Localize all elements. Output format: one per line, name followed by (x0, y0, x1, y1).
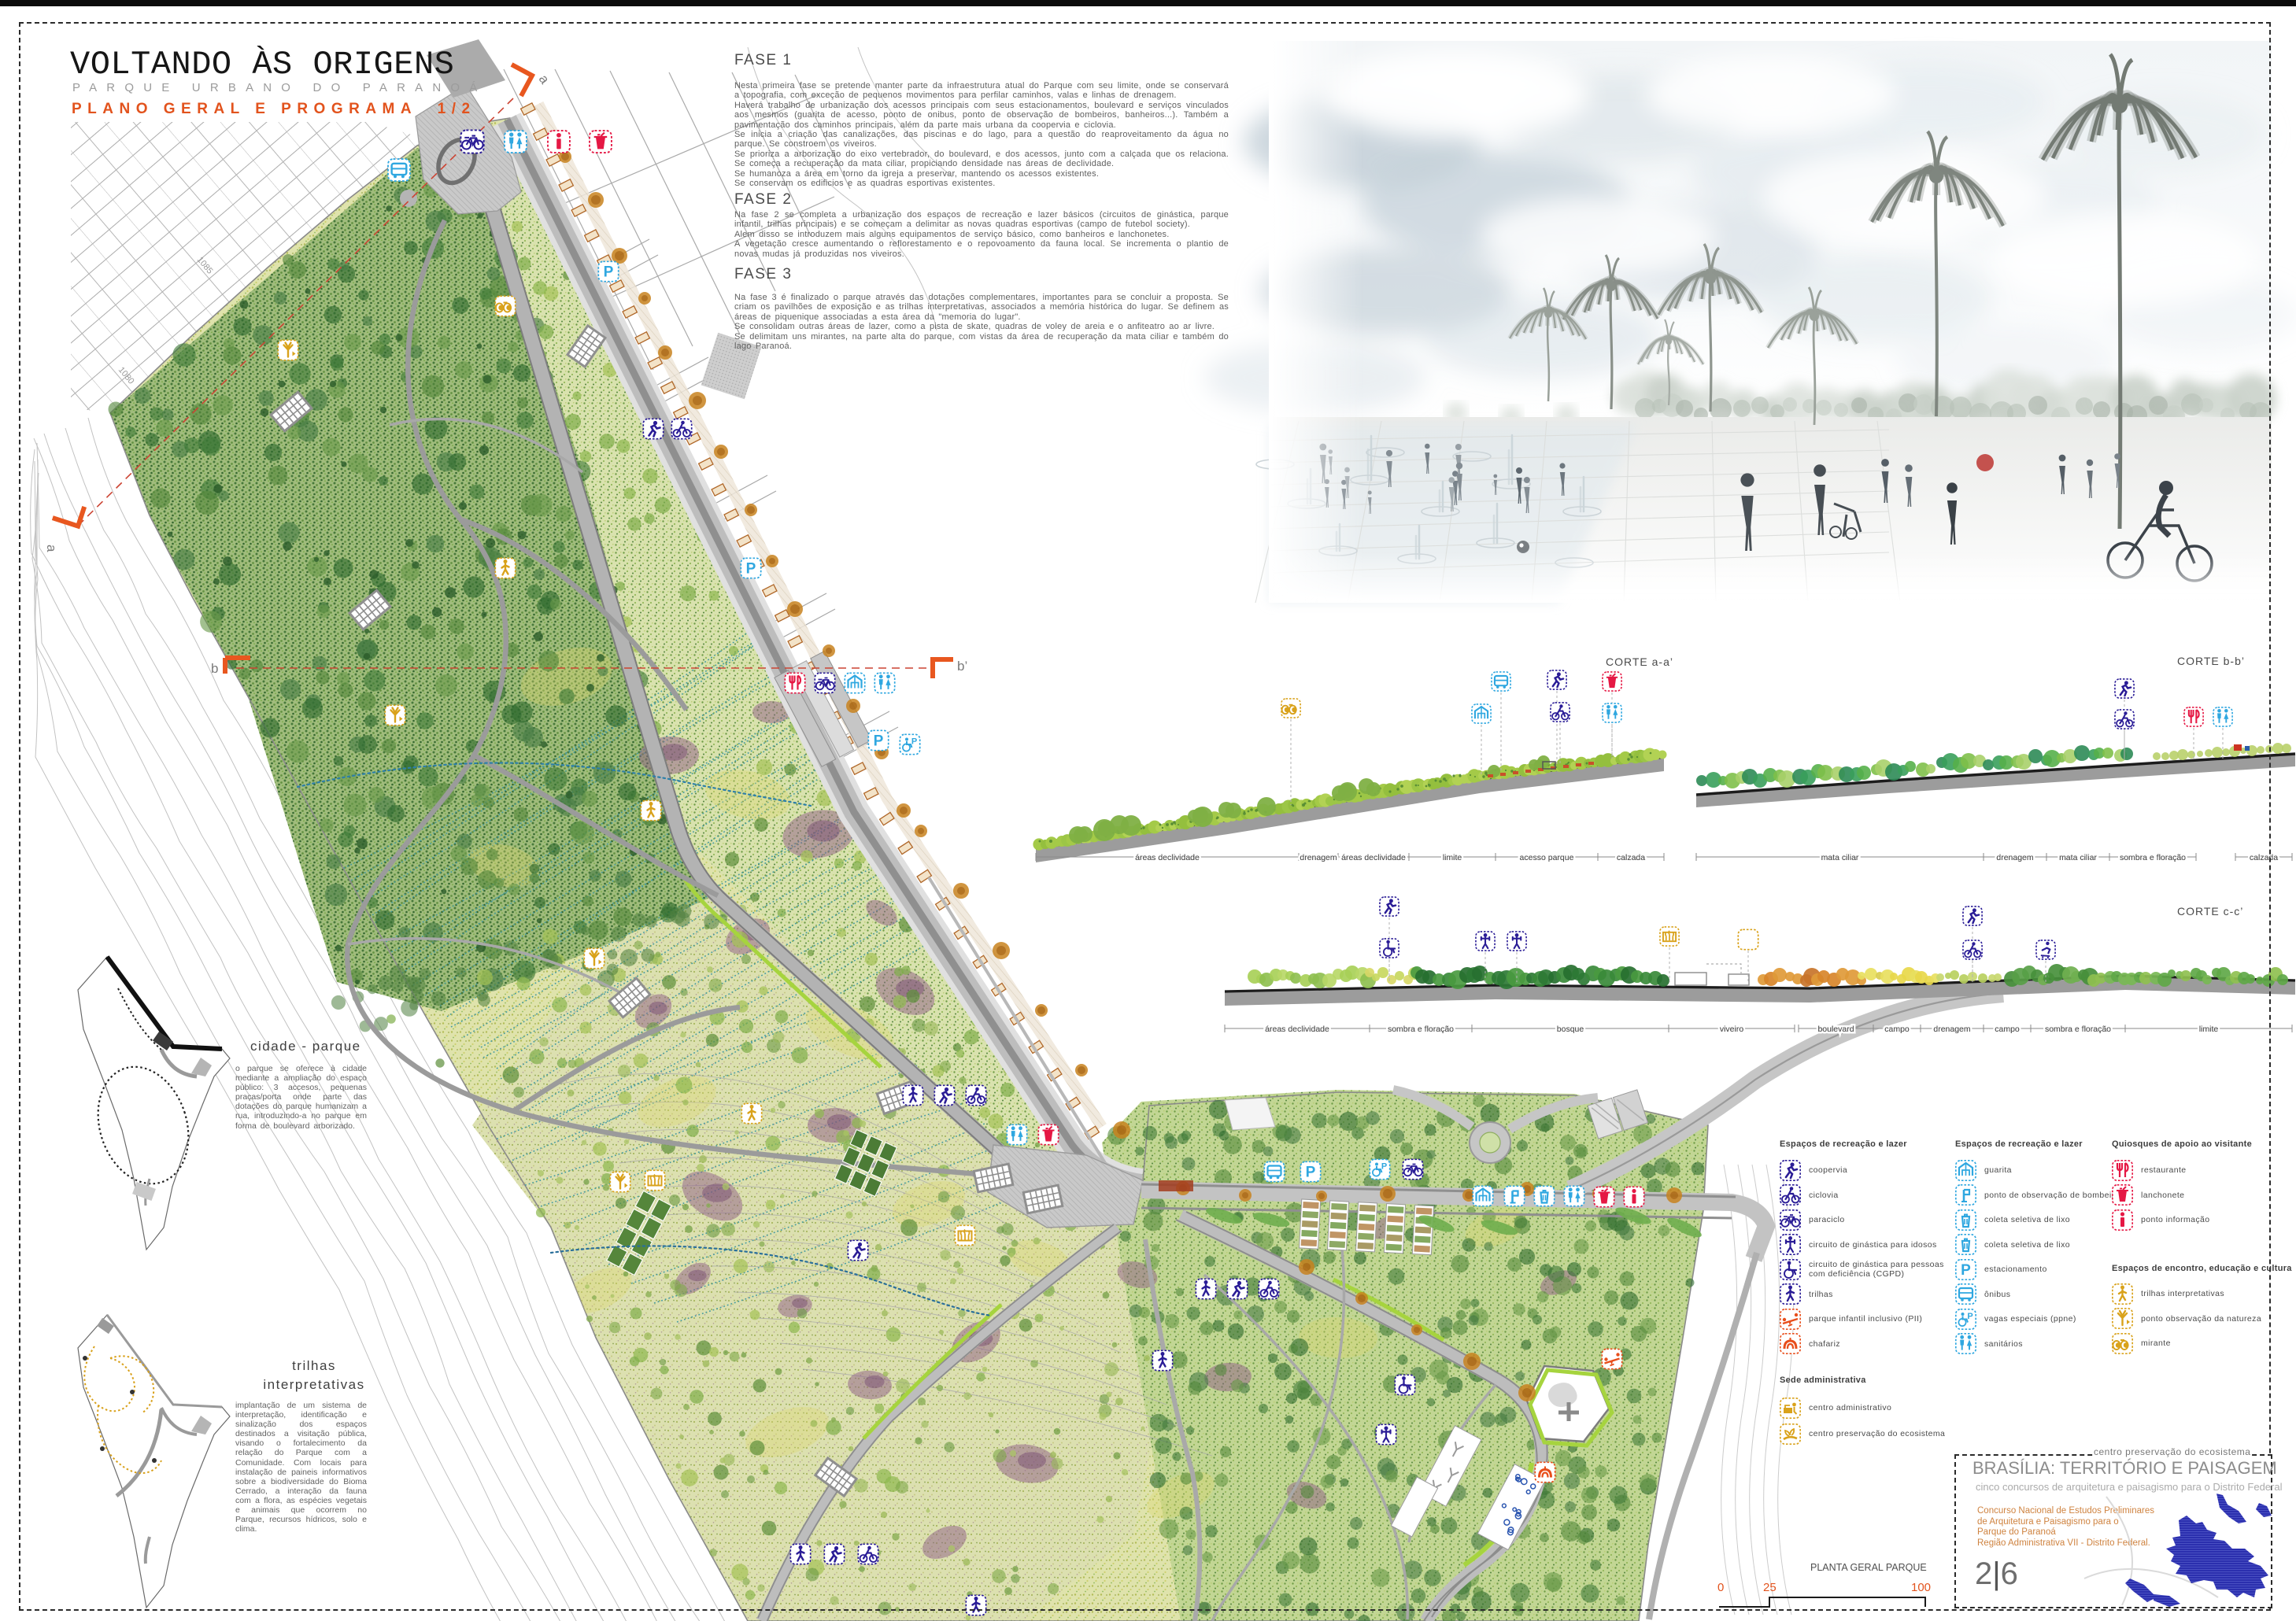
svg-text:100: 100 (1911, 1581, 1931, 1594)
svg-text:25: 25 (1763, 1581, 1777, 1594)
svg-text:0: 0 (1717, 1581, 1724, 1594)
